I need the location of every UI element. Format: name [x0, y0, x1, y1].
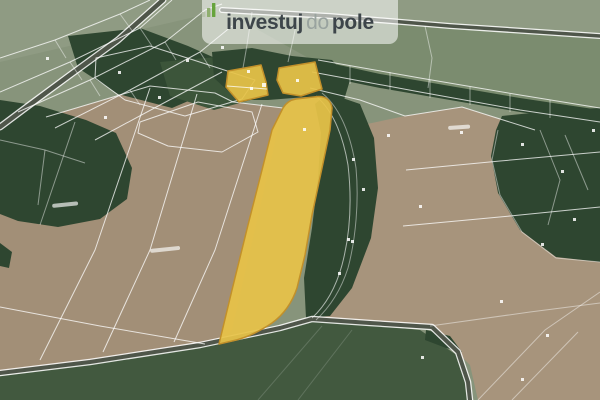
parcel-highlight-small-east[interactable]: [277, 62, 322, 96]
logo-text-pole: pole: [332, 12, 374, 33]
map-viewport[interactable]: investuj do pole: [0, 0, 600, 400]
growth-bars-icon: [202, 0, 217, 18]
logo-text-investuj: investuj: [226, 12, 303, 33]
logo-text-do: do: [306, 12, 329, 33]
satellite-map: [0, 0, 600, 400]
brand-logo: investuj do pole: [202, 0, 398, 44]
